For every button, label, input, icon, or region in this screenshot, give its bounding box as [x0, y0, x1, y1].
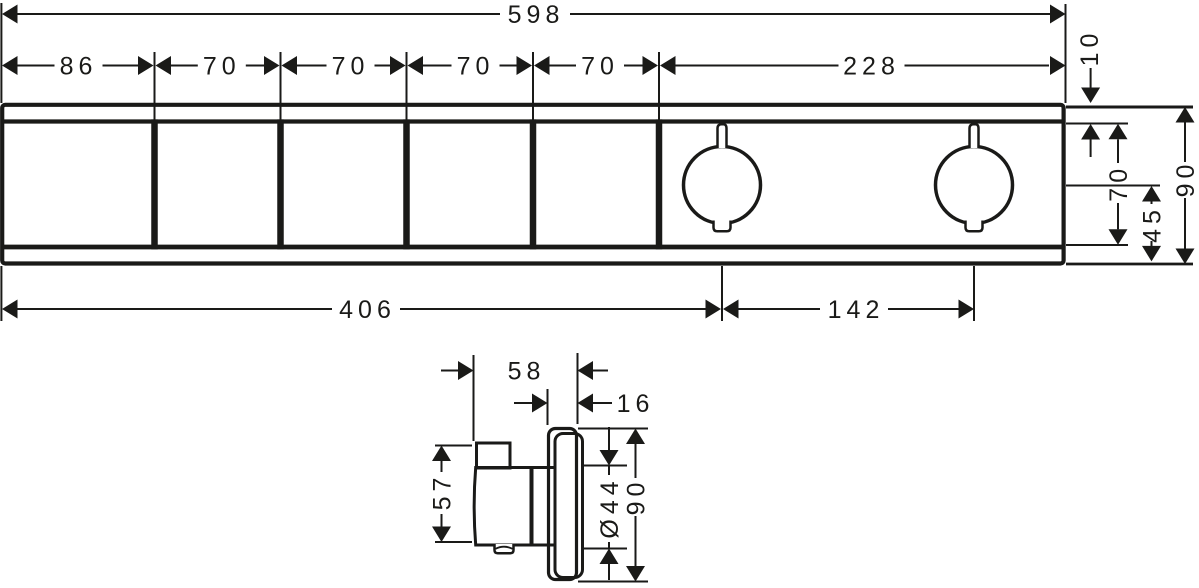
svg-text:228: 228	[843, 53, 900, 81]
svg-text:70: 70	[457, 53, 495, 81]
svg-text:45: 45	[1139, 205, 1167, 243]
svg-text:142: 142	[828, 296, 885, 324]
svg-text:70: 70	[203, 53, 241, 81]
svg-text:406: 406	[339, 296, 396, 324]
svg-text:70: 70	[1105, 164, 1133, 202]
svg-text:90: 90	[623, 478, 651, 516]
svg-text:Ø44: Ø44	[596, 476, 624, 538]
svg-text:57: 57	[429, 473, 457, 511]
svg-text:16: 16	[617, 390, 655, 418]
svg-text:86: 86	[60, 53, 98, 81]
svg-text:598: 598	[508, 1, 565, 29]
svg-text:58: 58	[508, 358, 546, 386]
svg-text:90: 90	[1172, 160, 1199, 198]
svg-text:70: 70	[332, 53, 370, 81]
svg-text:70: 70	[581, 53, 619, 81]
svg-text:10: 10	[1076, 29, 1104, 67]
